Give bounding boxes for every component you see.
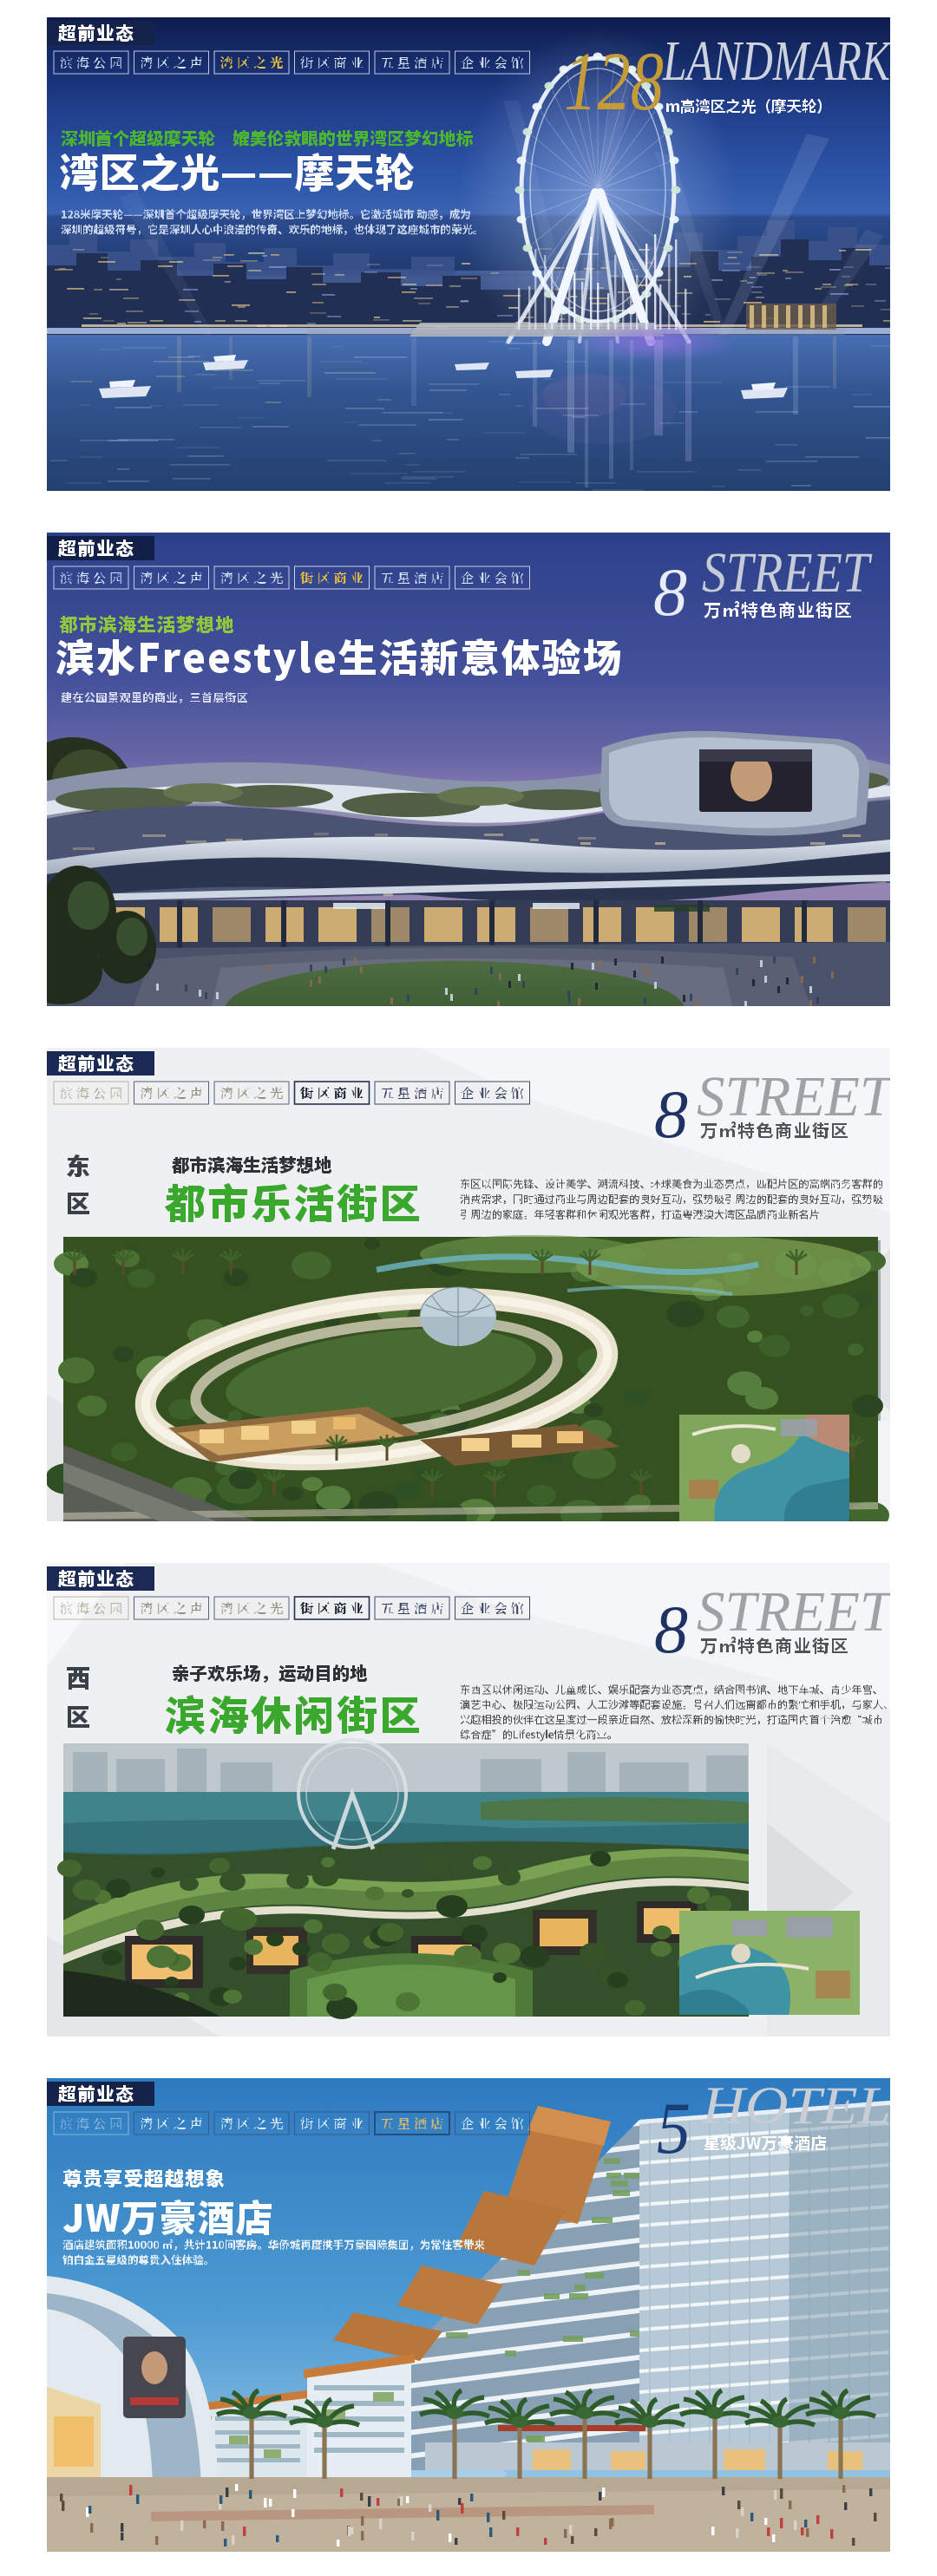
svg-text:STREET: STREET [697, 1065, 890, 1128]
svg-text:HOTEL: HOTEL [701, 2078, 890, 2135]
svg-text:128: 128 [564, 35, 664, 127]
svg-text:8: 8 [653, 554, 687, 630]
svg-text:STREET: STREET [697, 1580, 890, 1644]
svg-text:STREET: STREET [702, 541, 873, 605]
svg-text:8: 8 [654, 1076, 688, 1152]
svg-text:8: 8 [654, 1592, 688, 1667]
svg-text:LANDMARK: LANDMARK [662, 29, 890, 93]
svg-text:5: 5 [657, 2088, 691, 2169]
